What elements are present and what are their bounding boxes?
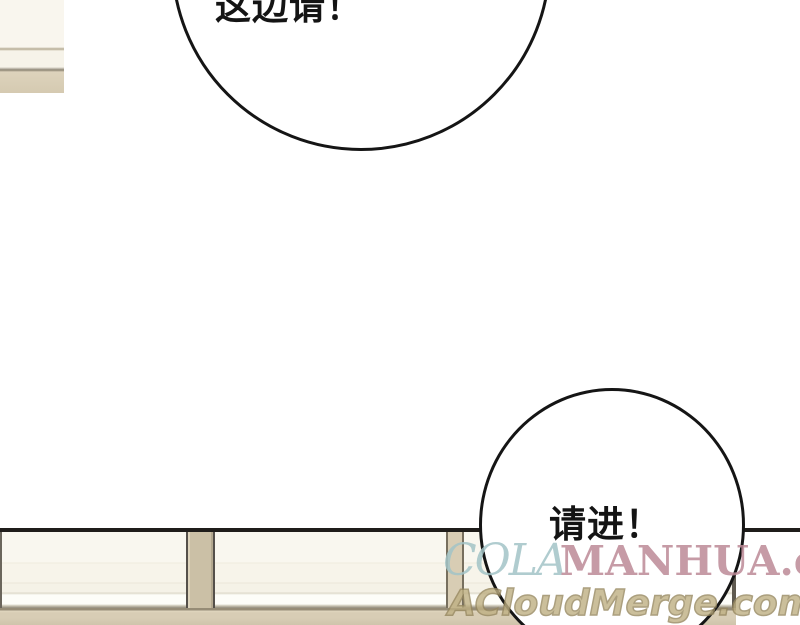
window-mullion-left — [186, 532, 215, 608]
watermark-manhua-caps-part: MANHUA — [560, 537, 780, 585]
window-pane-far-right — [0, 0, 64, 93]
speech-bubble-top-text: 这边请！ — [215, 0, 363, 30]
speech-bubble-top: 这边请！ — [171, 0, 551, 151]
comic-panel: 这边请！ 请进！ COLAMANHUA.com ACloudMerge.com — [0, 0, 800, 625]
watermark-com-suffix-part: .com — [779, 537, 800, 585]
window-pane-middle — [215, 532, 446, 608]
window-pane-left — [2, 532, 186, 608]
watermark-cola-script-part: COLA — [443, 535, 566, 586]
watermark-acloudmerge: ACloudMerge.com — [448, 583, 800, 624]
window-frame-left-edge — [0, 532, 2, 608]
